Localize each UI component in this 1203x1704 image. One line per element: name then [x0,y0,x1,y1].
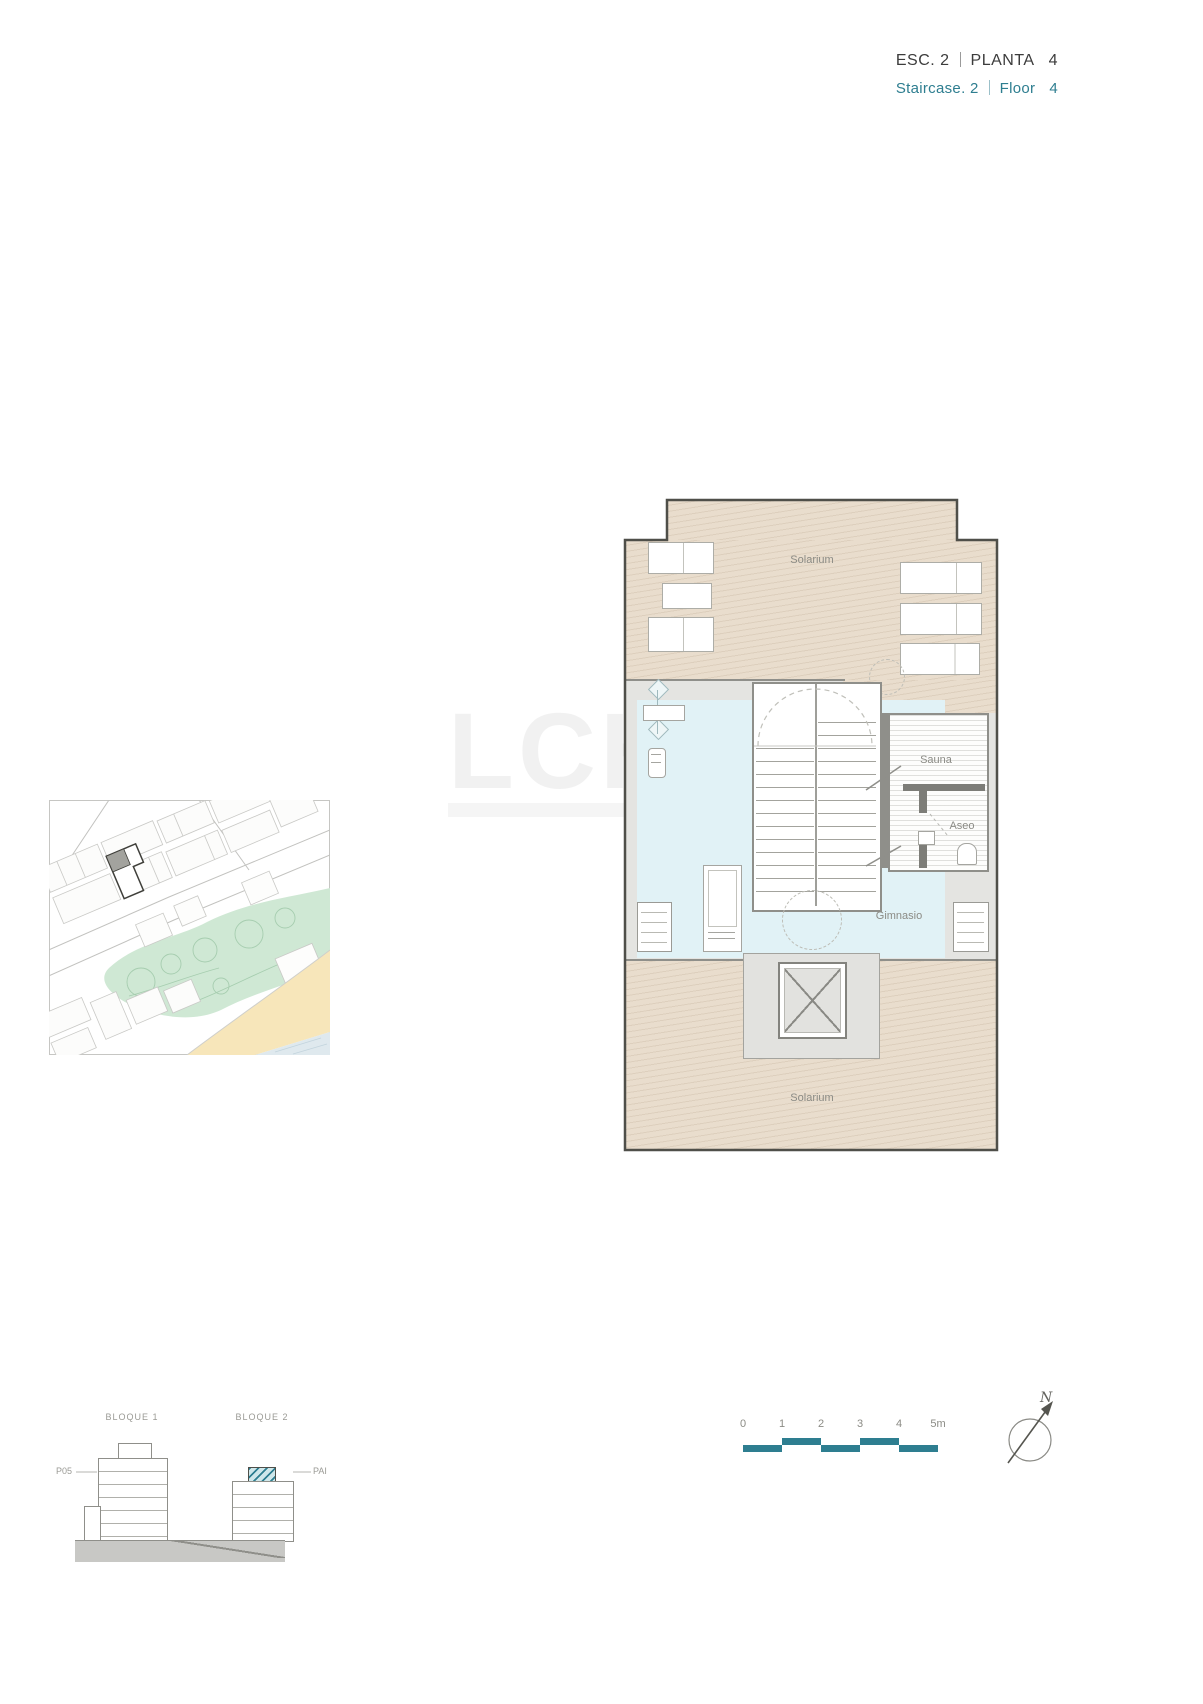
north-label: N [1040,1390,1052,1406]
exercise-bike-icon [648,748,666,778]
planta-number: 4 [1049,52,1058,69]
sun-lounger [648,617,714,652]
solarium-top-area [667,500,957,540]
sun-lounger [648,542,714,574]
watermark-subtext-strip [448,803,645,817]
pai-label: PAI [313,1466,327,1476]
treadmill-belt [708,870,737,927]
location-map [49,800,330,1055]
elevator-shaft [778,962,847,1039]
ac-unit-left [637,902,672,952]
scale-tick: 5m [930,1418,945,1430]
scale-segment [899,1445,938,1452]
wall-line [625,959,743,961]
title-divider [960,52,961,67]
staircase-label: Staircase. 2 [896,80,979,97]
exercise-bike-detail [651,762,661,763]
room-label-solarium-top: Solarium [790,554,833,566]
floor-label: Floor [1000,80,1036,97]
floor-number: 4 [1049,80,1058,97]
sauna-bench-wall [903,784,985,791]
p05-label: P05 [56,1466,72,1476]
bloque1-building [98,1458,168,1542]
plan-sheet: ESC. 2PLANTA4 Staircase. 2Floor4 LCH [0,0,1203,1704]
scale-tick: 1 [779,1418,785,1430]
treadmill-console [708,932,735,933]
title-divider-2 [989,80,990,95]
sea-area [255,1032,330,1055]
sun-lounger [662,583,712,609]
stair-center-wall [815,684,817,906]
room-label-gimnasio: Gimnasio [876,910,922,922]
bloque1-label: BLOQUE 1 [105,1412,158,1422]
treadmill-console [708,938,735,939]
bloque1-annex [84,1506,101,1542]
sheet-title-spanish: ESC. 2PLANTA4 [896,52,1058,70]
sheet-title-english: Staircase. 2Floor4 [896,80,1058,97]
exercise-bike-detail [651,754,661,755]
beach-area [187,950,330,1055]
aseo-wall [919,791,927,813]
scale-tick: 4 [896,1418,902,1430]
room-label-aseo: Aseo [949,820,974,832]
toilet-fixture [957,843,977,865]
sun-lounger [900,603,982,635]
subject-building-marker [106,844,153,899]
gym-bench [643,705,685,721]
park-area [104,888,330,1017]
stair-steps-right [818,722,876,898]
ground-ramp-line [170,1540,285,1558]
sun-lounger [900,643,980,675]
scale-segment [782,1438,821,1445]
scale-tick: 0 [740,1418,746,1430]
scale-segment [821,1445,860,1452]
scale-segment [860,1438,899,1445]
sun-lounger [900,562,982,594]
gym-dashed-circle [782,890,842,950]
planta-label: PLANTA [971,52,1035,69]
stair-steps-left [756,748,814,898]
scale-tick: 3 [857,1418,863,1430]
bloque2-building [232,1481,294,1542]
bloque2-label: BLOQUE 2 [235,1412,288,1422]
wall-line [880,713,888,868]
scale-bar: 0 1 2 3 4 5m [743,1418,943,1454]
plan-linework [0,0,1203,1704]
esc-label: ESC. 2 [896,52,950,69]
wall-line [878,959,997,961]
scale-segment [743,1445,782,1452]
sink-fixture [918,831,935,845]
scale-tick: 2 [818,1418,824,1430]
room-label-solarium-bottom: Solarium [790,1092,833,1104]
room-label-sauna: Sauna [920,754,952,766]
ac-unit-right [953,902,989,952]
